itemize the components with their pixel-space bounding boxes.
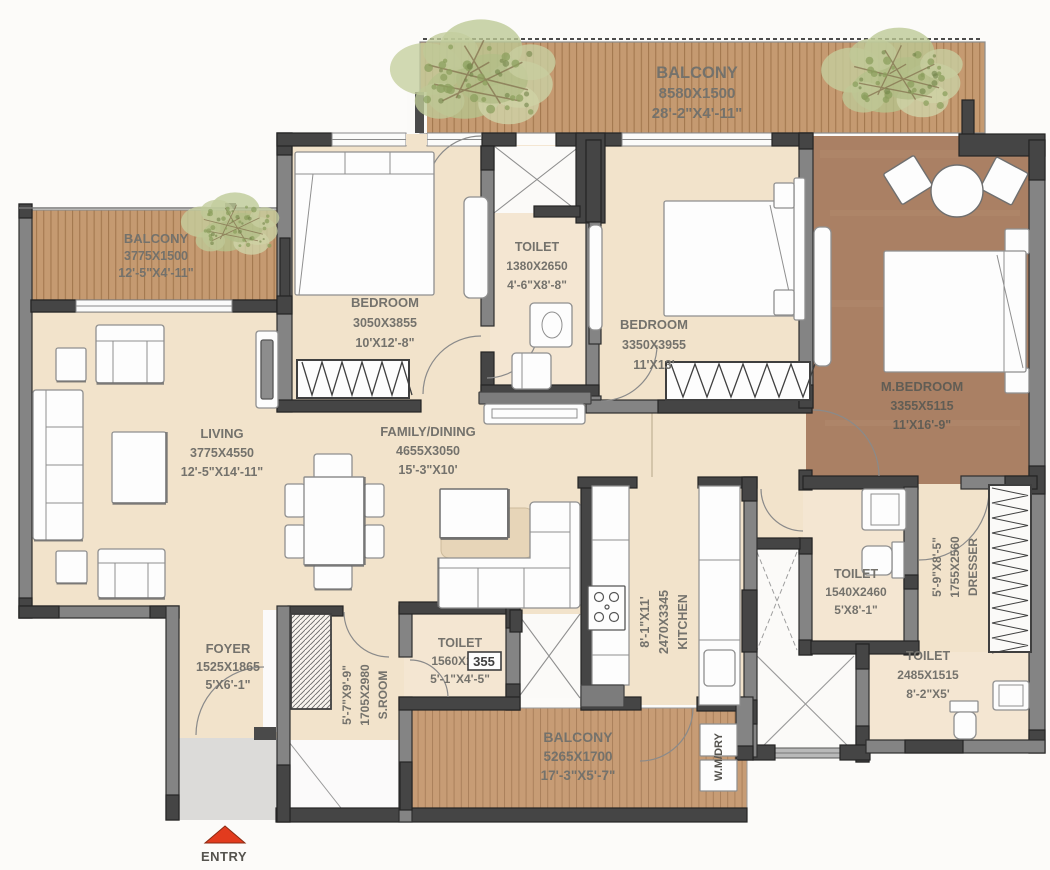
svg-text:355: 355 [473, 654, 495, 669]
svg-text:8580X1500: 8580X1500 [659, 85, 736, 102]
svg-text:4655X3050: 4655X3050 [396, 444, 460, 458]
svg-text:BEDROOM: BEDROOM [620, 317, 688, 332]
svg-text:BEDROOM: BEDROOM [351, 295, 419, 310]
svg-text:4'-6"X8'-8": 4'-6"X8'-8" [507, 278, 567, 292]
svg-text:5'X6'-1": 5'X6'-1" [205, 678, 250, 692]
svg-text:BALCONY: BALCONY [543, 729, 613, 745]
svg-text:15'-3"X10': 15'-3"X10' [398, 463, 457, 477]
svg-text:DRESSER: DRESSER [966, 538, 980, 596]
svg-text:12'-5"X14'-11": 12'-5"X14'-11" [181, 465, 264, 479]
svg-text:W.M/DRY: W.M/DRY [713, 732, 725, 781]
svg-text:5'X8'-1": 5'X8'-1" [834, 603, 877, 617]
svg-text:5'-1"X4'-5": 5'-1"X4'-5" [430, 672, 490, 686]
svg-text:10'X12'-8": 10'X12'-8" [355, 336, 414, 350]
svg-text:5'-9"X8'-5": 5'-9"X8'-5" [930, 537, 944, 597]
svg-text:17'-3"X5'-7": 17'-3"X5'-7" [541, 768, 616, 783]
svg-text:1380X2650: 1380X2650 [506, 259, 568, 273]
svg-text:8'-1"X11': 8'-1"X11' [638, 596, 652, 648]
svg-text:11'X13': 11'X13' [633, 358, 674, 372]
svg-text:11'X16'-9": 11'X16'-9" [893, 418, 952, 432]
svg-text:TOILET: TOILET [834, 567, 879, 581]
svg-text:LIVING: LIVING [200, 426, 243, 441]
svg-text:FAMILY/DINING: FAMILY/DINING [380, 424, 476, 439]
svg-text:3355X5115: 3355X5115 [890, 399, 953, 413]
svg-text:2470X3345: 2470X3345 [657, 590, 671, 654]
svg-text:3775X4550: 3775X4550 [190, 446, 254, 460]
svg-text:M.BEDROOM: M.BEDROOM [881, 379, 963, 394]
svg-text:FOYER: FOYER [206, 641, 251, 656]
svg-text:TOILET: TOILET [515, 240, 560, 254]
svg-text:1560X1: 1560X1 [431, 654, 473, 668]
svg-text:28'-2"X4'-11": 28'-2"X4'-11" [652, 105, 743, 122]
svg-text:KITCHEN: KITCHEN [676, 594, 690, 650]
svg-text:5'-7"X9'-9": 5'-7"X9'-9" [340, 665, 354, 725]
svg-text:ENTRY: ENTRY [201, 849, 247, 864]
svg-text:3050X3855: 3050X3855 [353, 316, 417, 330]
svg-text:12'-5"X4'-11": 12'-5"X4'-11" [118, 266, 194, 280]
svg-text:BALCONY: BALCONY [124, 231, 189, 246]
svg-text:TOILET: TOILET [906, 649, 951, 663]
svg-text:2485X1515: 2485X1515 [897, 668, 959, 682]
svg-text:TOILET: TOILET [438, 636, 483, 650]
svg-text:3775X1500: 3775X1500 [124, 249, 188, 263]
svg-text:BALCONY: BALCONY [656, 64, 738, 82]
svg-text:5265X1700: 5265X1700 [543, 749, 612, 764]
svg-text:1540X2460: 1540X2460 [825, 585, 887, 599]
svg-text:S.ROOM: S.ROOM [376, 671, 390, 720]
svg-text:3350X3955: 3350X3955 [622, 338, 686, 352]
svg-text:8'-2"X5': 8'-2"X5' [906, 687, 950, 701]
svg-text:1525X1865: 1525X1865 [196, 660, 260, 674]
svg-text:1705X2980: 1705X2980 [358, 664, 372, 726]
svg-text:1755X2560: 1755X2560 [948, 536, 962, 598]
